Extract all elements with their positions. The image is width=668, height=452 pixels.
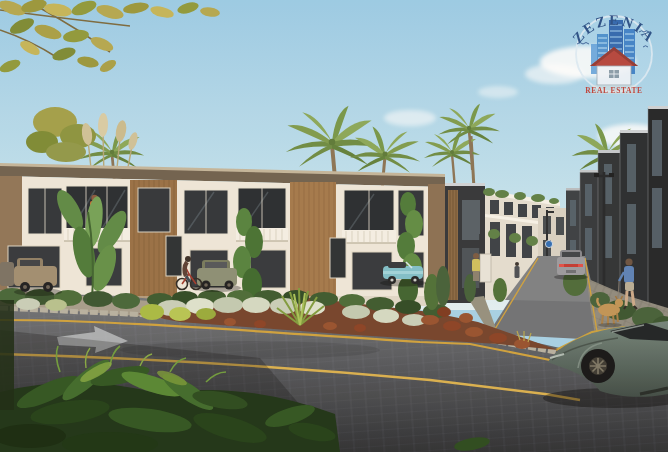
- real-estate-listing-photo: ZEZENIA REAL ESTATE: [0, 0, 668, 452]
- light-wash: [0, 0, 668, 452]
- tagline-text: REAL ESTATE: [585, 86, 642, 95]
- exterior-render: ZEZENIA REAL ESTATE: [0, 0, 668, 452]
